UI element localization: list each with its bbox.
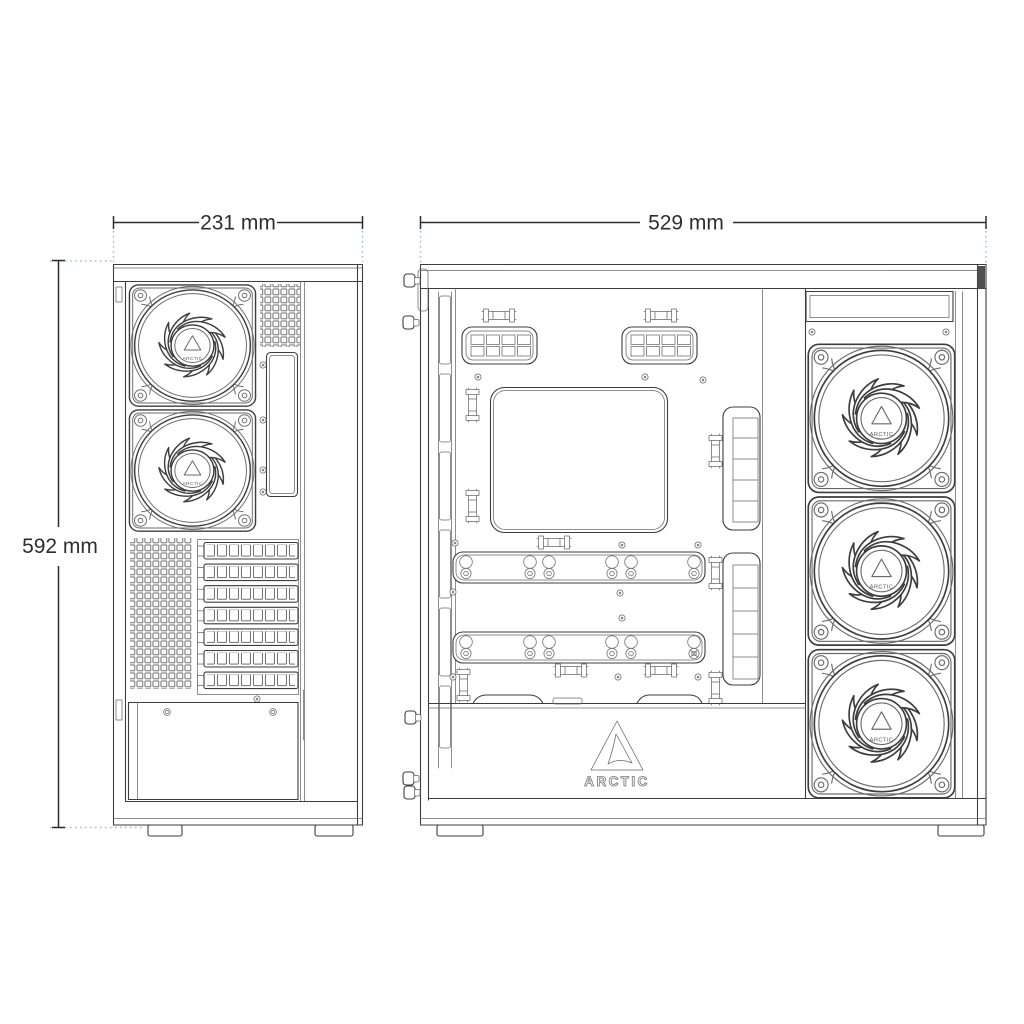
rear-top-vent-grid xyxy=(260,284,300,347)
arctic-logo-text: ARCTIC xyxy=(584,774,649,789)
case-dimension-diagram: ARCTIC xyxy=(0,0,1024,1024)
width-dimension-label: 231 mm xyxy=(200,212,276,235)
front-fan-2 xyxy=(808,497,954,645)
rear-view xyxy=(114,265,363,837)
rear-fan-1 xyxy=(129,285,255,406)
rear-fan-2 xyxy=(129,410,255,531)
top-vent xyxy=(806,292,953,322)
dimension-width: 231 mm xyxy=(114,212,363,235)
case-foot xyxy=(938,825,984,836)
front-fan-1 xyxy=(808,344,954,492)
drive-rail-lower xyxy=(453,632,705,663)
front-corner-shade xyxy=(978,266,986,289)
side-view: ARCTIC xyxy=(403,265,986,837)
drive-rail-upper xyxy=(453,552,705,583)
dimension-height: 592 mm xyxy=(22,261,98,828)
case-foot xyxy=(148,825,182,836)
diagram-svg: ARCTIC xyxy=(0,0,1024,1024)
psu-bay xyxy=(129,703,299,800)
front-fan-3 xyxy=(808,650,954,798)
case-foot xyxy=(437,825,483,836)
height-dimension-label: 592 mm xyxy=(22,535,98,558)
expansion-slots xyxy=(198,540,299,703)
rear-side-vent-grid xyxy=(130,538,192,689)
case-foot xyxy=(315,825,353,836)
front-fans xyxy=(808,344,954,798)
dimension-depth: 529 mm xyxy=(421,212,987,235)
depth-dimension-label: 529 mm xyxy=(648,212,724,235)
